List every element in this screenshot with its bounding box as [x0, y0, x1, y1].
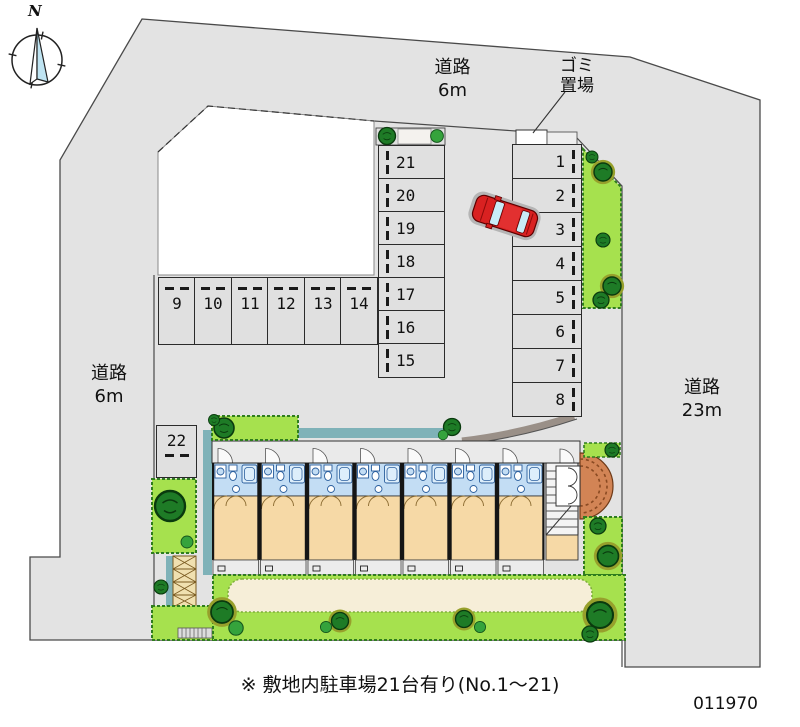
- stall-number: 3: [555, 220, 565, 239]
- parking-stall-7: 7: [512, 348, 582, 383]
- parking-stall-18: 18: [378, 244, 445, 278]
- parking-stall-21: 21: [378, 145, 445, 179]
- stall-number: 15: [396, 351, 415, 370]
- stall-entry-dashes: [572, 320, 575, 343]
- stall-number: 14: [349, 294, 368, 313]
- parking-stall-4: 4: [512, 246, 582, 281]
- parking-stall-14: 14: [340, 277, 378, 345]
- parking-stall-15: 15: [378, 343, 445, 378]
- parking-stall-3: 3: [512, 212, 582, 247]
- parking-stall-11: 11: [231, 277, 269, 345]
- stall-number: 22: [167, 431, 186, 450]
- stall-entry-dashes: [386, 151, 389, 174]
- small-structure: [376, 128, 445, 146]
- stall-number: 2: [555, 186, 565, 205]
- parking-stall-6: 6: [512, 314, 582, 349]
- compass-icon: [3, 26, 72, 95]
- stall-entry-dashes: [386, 250, 389, 273]
- stall-number: 6: [555, 322, 565, 341]
- stall-number: 17: [396, 285, 415, 304]
- site-plan-page: 1 2 3 4 5 6 7 8 21 20 19 18 17 16 15 9 1…: [0, 0, 800, 727]
- stall-entry-dashes: [572, 218, 575, 241]
- parking-stall-2: 2: [512, 178, 582, 213]
- parking-stall-20: 20: [378, 178, 445, 212]
- stall-entry-dashes: [311, 287, 335, 290]
- stall-number: 4: [555, 254, 565, 273]
- west-wall-shadow: [203, 430, 212, 575]
- parking-stall-1: 1: [512, 144, 582, 179]
- stall-entry-dashes: [386, 316, 389, 339]
- parking-stall-17: 17: [378, 277, 445, 311]
- cycle-rack: [166, 556, 196, 607]
- parking-stall-9: 9: [158, 277, 196, 345]
- stall-number: 18: [396, 252, 415, 271]
- stall-number: 16: [396, 318, 415, 337]
- parking-stall-12: 12: [267, 277, 305, 345]
- stall-entry-dashes: [347, 287, 371, 290]
- stall-entry-dashes: [572, 184, 575, 207]
- stall-number: 9: [172, 294, 182, 313]
- parking-stall-13: 13: [304, 277, 342, 345]
- stall-number: 19: [396, 219, 415, 238]
- stall-number: 20: [396, 186, 415, 205]
- stall-entry-dashes: [572, 252, 575, 275]
- stall-number: 11: [240, 294, 259, 313]
- parking-stall-22: 22: [156, 425, 197, 478]
- parking-stall-19: 19: [378, 211, 445, 245]
- vacant-lot: [158, 106, 374, 275]
- stall-number: 13: [313, 294, 332, 313]
- stall-entry-dashes: [386, 283, 389, 306]
- stall-entry-dashes: [386, 184, 389, 207]
- stall-number: 10: [203, 294, 222, 313]
- parking-stall-16: 16: [378, 310, 445, 344]
- stall-entry-dashes: [572, 286, 575, 309]
- stall-number: 7: [555, 356, 565, 375]
- north-fence: [298, 428, 444, 438]
- stall-entry-dashes: [165, 287, 189, 290]
- stall-number: 21: [396, 153, 415, 172]
- stall-entry-dashes: [201, 287, 225, 290]
- parking-stall-8: 8: [512, 382, 582, 417]
- parking-stall-5: 5: [512, 280, 582, 315]
- stall-entry-dashes: [572, 150, 575, 173]
- stall-number: 1: [555, 152, 565, 171]
- grate: [178, 628, 212, 638]
- stall-entry-dashes: [572, 354, 575, 377]
- stall-entry-dashes: [238, 287, 262, 290]
- stall-entry-dashes: [386, 349, 389, 372]
- stall-entry-dashes: [386, 217, 389, 240]
- stall-number: 5: [555, 288, 565, 307]
- stall-number: 12: [276, 294, 295, 313]
- parking-stall-10: 10: [194, 277, 232, 345]
- stall-entry-dashes: [274, 287, 298, 290]
- stall-entry-dashes: [572, 388, 575, 411]
- stall-entry-dashes: [165, 454, 189, 457]
- stall-number: 8: [555, 390, 565, 409]
